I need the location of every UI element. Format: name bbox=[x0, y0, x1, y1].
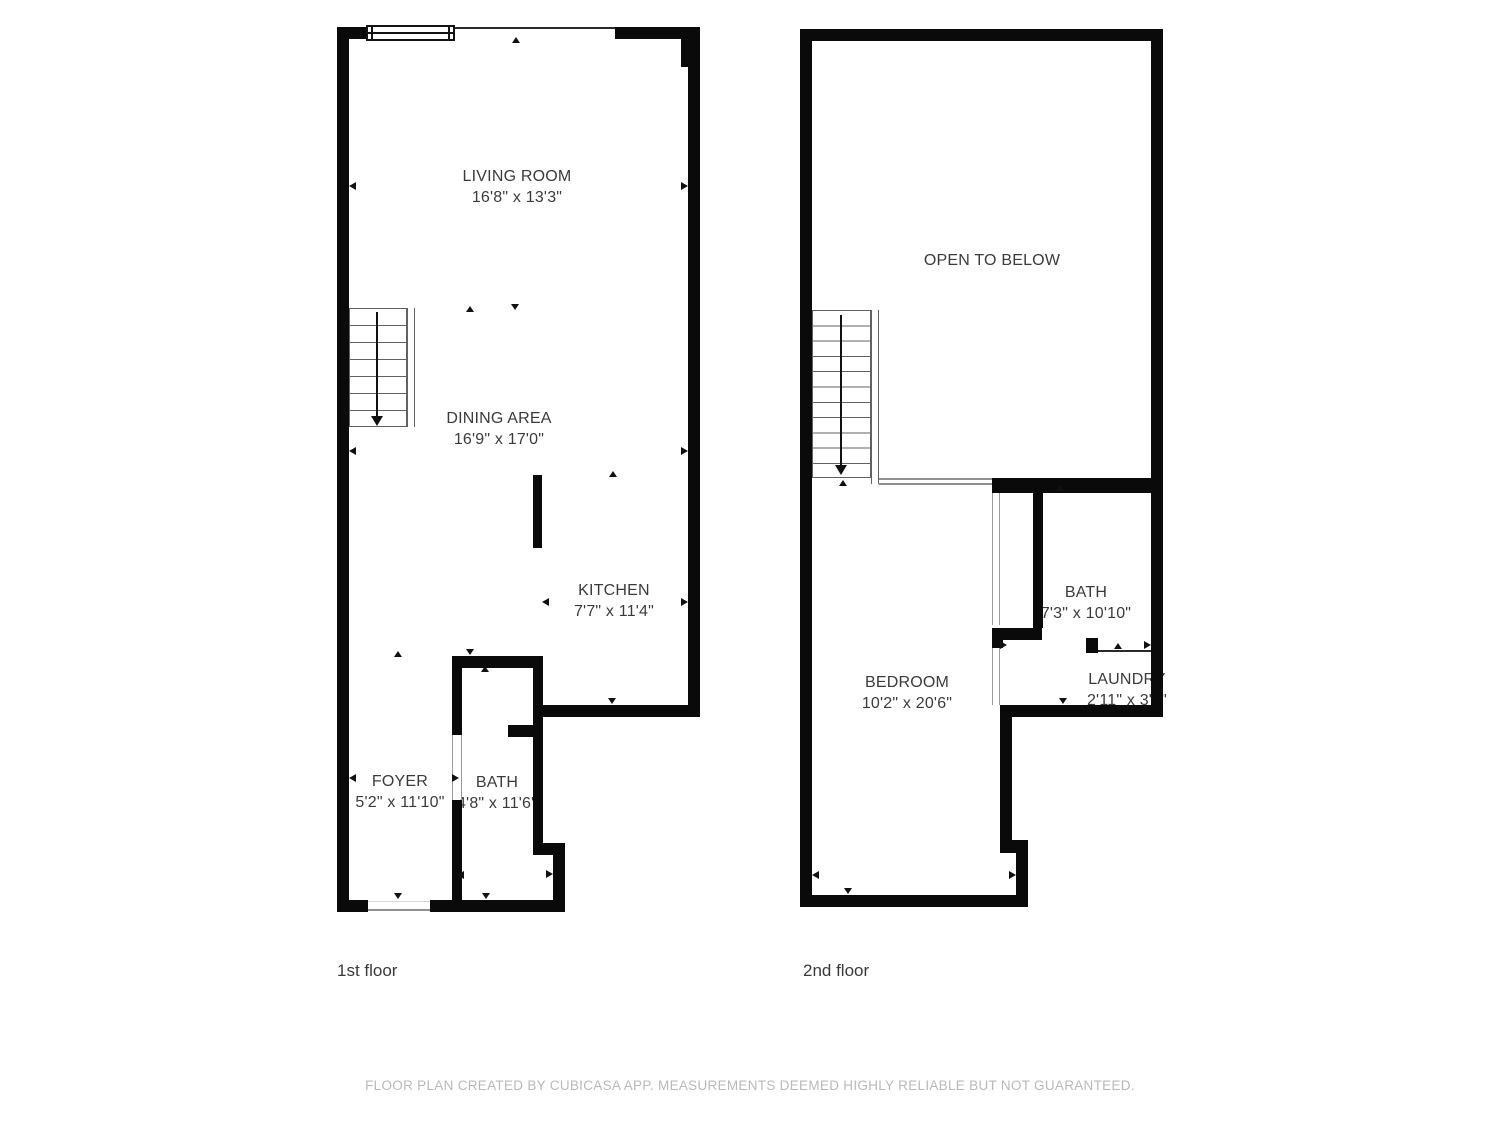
measure-arrow-up-icon bbox=[512, 37, 520, 43]
wall bbox=[337, 900, 368, 912]
floor-2-label: 2nd floor bbox=[803, 961, 869, 981]
measure-arrow-right-icon bbox=[452, 774, 459, 782]
room-name: BEDROOM bbox=[862, 672, 952, 693]
floor-plan-canvas: LIVING ROOM 16'8" x 13'3" DINING AREA 16… bbox=[0, 0, 1500, 1125]
room-label-bath-1: BATH 4'8" x 11'6" bbox=[457, 772, 537, 814]
measure-arrow-left-icon bbox=[349, 774, 356, 782]
measure-arrow-up-icon bbox=[1114, 643, 1122, 649]
room-name: LIVING ROOM bbox=[463, 166, 572, 187]
wall bbox=[800, 29, 1163, 41]
laundry-door-opening bbox=[1098, 650, 1151, 652]
measure-arrow-left-icon bbox=[457, 871, 464, 879]
room-name: BATH bbox=[1041, 582, 1131, 603]
measure-arrow-up-icon bbox=[839, 480, 847, 486]
room-name: BATH bbox=[457, 772, 537, 793]
measure-arrow-left-icon bbox=[542, 598, 549, 606]
wall bbox=[452, 656, 462, 735]
bedroom-door-jamb bbox=[992, 648, 993, 705]
wall bbox=[508, 725, 533, 737]
stair-stringer bbox=[407, 308, 415, 427]
bedroom-opening-jamb bbox=[999, 493, 1000, 625]
floor-1-label: 1st floor bbox=[337, 961, 397, 981]
measure-arrow-right-icon bbox=[546, 870, 553, 878]
window-pane-line bbox=[368, 32, 453, 34]
measure-arrow-right-icon bbox=[1144, 641, 1151, 649]
room-dimensions: 7'3" x 10'10" bbox=[1041, 603, 1131, 624]
room-dimensions: 4'8" x 11'6" bbox=[457, 793, 537, 814]
wall bbox=[430, 900, 565, 912]
room-label-bath-2: BATH 7'3" x 10'10" bbox=[1041, 582, 1131, 624]
wall bbox=[533, 656, 543, 855]
wall bbox=[992, 478, 1163, 493]
stair-direction-arrow bbox=[840, 315, 842, 465]
staircase bbox=[349, 308, 407, 427]
bedroom-door-jamb bbox=[999, 648, 1000, 705]
wall bbox=[452, 800, 462, 912]
opening-line bbox=[453, 27, 615, 29]
stair-direction-arrow bbox=[376, 312, 378, 416]
wall bbox=[533, 475, 542, 548]
measure-arrow-right-icon bbox=[681, 447, 688, 455]
measure-arrow-left-icon bbox=[349, 182, 356, 190]
wall bbox=[992, 628, 1042, 640]
window-frame-cap bbox=[448, 27, 450, 39]
railing-line bbox=[879, 478, 992, 480]
measure-arrow-up-icon bbox=[609, 471, 617, 477]
bath-door-jamb bbox=[452, 735, 453, 800]
wall bbox=[452, 656, 543, 668]
room-name: FOYER bbox=[355, 771, 444, 792]
measure-arrow-up-icon bbox=[1056, 485, 1064, 491]
railing-line bbox=[879, 483, 992, 485]
wall bbox=[1151, 29, 1163, 717]
room-name: KITCHEN bbox=[574, 580, 654, 601]
wall bbox=[800, 29, 812, 907]
wall bbox=[1000, 705, 1012, 853]
room-label-living-room: LIVING ROOM 16'8" x 13'3" bbox=[463, 166, 572, 208]
measure-arrow-up-icon bbox=[466, 306, 474, 312]
wall bbox=[688, 27, 700, 717]
measure-arrow-right-icon bbox=[1009, 871, 1016, 879]
measure-arrow-up-icon bbox=[394, 651, 402, 657]
wall bbox=[800, 895, 1028, 907]
measure-arrow-left-icon bbox=[349, 447, 356, 455]
measure-arrow-right-icon bbox=[681, 598, 688, 606]
room-label-dining-area: DINING AREA 16'9" x 17'0" bbox=[446, 408, 551, 450]
room-dimensions: 16'9" x 17'0" bbox=[446, 429, 551, 450]
measure-arrow-down-icon bbox=[511, 304, 519, 310]
room-dimensions: 5'2" x 11'10" bbox=[355, 792, 444, 813]
room-dimensions: 10'2" x 20'6" bbox=[862, 693, 952, 714]
stair-direction-arrow-head-icon bbox=[371, 416, 383, 426]
wall bbox=[337, 27, 349, 912]
measure-arrow-right-icon bbox=[1000, 641, 1007, 649]
room-name: OPEN TO BELOW bbox=[924, 250, 1060, 271]
wall bbox=[1000, 705, 1163, 717]
measure-arrow-right-icon bbox=[681, 182, 688, 190]
measure-arrow-up-icon bbox=[481, 666, 489, 672]
room-label-foyer: FOYER 5'2" x 11'10" bbox=[355, 771, 444, 813]
room-label-kitchen: KITCHEN 7'7" x 11'4" bbox=[574, 580, 654, 622]
entry-door-opening bbox=[368, 909, 430, 911]
room-dimensions: 16'8" x 13'3" bbox=[463, 187, 572, 208]
measure-arrow-down-icon bbox=[466, 649, 474, 655]
measure-arrow-down-icon bbox=[1059, 698, 1067, 704]
wall bbox=[1086, 638, 1098, 653]
window-frame-cap bbox=[371, 27, 373, 39]
entry-door-opening bbox=[368, 901, 430, 902]
wall bbox=[1033, 492, 1043, 628]
measure-arrow-left-icon bbox=[812, 871, 819, 879]
measure-arrow-down-icon bbox=[608, 698, 616, 704]
room-label-bedroom: BEDROOM 10'2" x 20'6" bbox=[862, 672, 952, 714]
window bbox=[366, 25, 455, 41]
measure-arrow-down-icon bbox=[394, 893, 402, 899]
stair-direction-arrow-head-icon bbox=[835, 465, 847, 475]
bath-door-jamb bbox=[461, 735, 462, 800]
room-name: DINING AREA bbox=[446, 408, 551, 429]
disclaimer-text: FLOOR PLAN CREATED BY CUBICASA APP. MEAS… bbox=[0, 1078, 1500, 1093]
room-dimensions: 7'7" x 11'4" bbox=[574, 601, 654, 622]
measure-arrow-down-icon bbox=[482, 893, 490, 899]
measure-arrow-down-icon bbox=[844, 888, 852, 894]
stair-stringer bbox=[871, 310, 879, 484]
wall bbox=[540, 705, 700, 717]
room-label-open-to-below: OPEN TO BELOW bbox=[924, 250, 1060, 271]
bedroom-opening-jamb bbox=[992, 493, 993, 625]
